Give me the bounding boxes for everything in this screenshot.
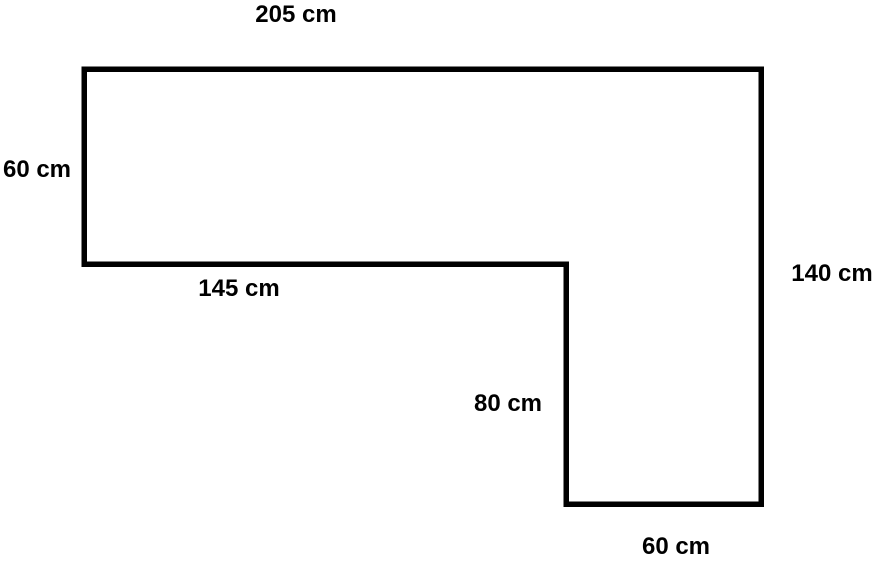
dimension-label-right: 140 cm (791, 262, 872, 286)
dimension-label-inner-vertical: 80 cm (474, 392, 542, 416)
l-shape-polygon (84, 69, 761, 504)
dimension-label-bottom: 60 cm (642, 535, 710, 559)
dimension-label-left: 60 cm (3, 158, 71, 182)
dimension-label-top: 205 cm (255, 3, 336, 27)
geometry-diagram: 205 cm 60 cm 145 cm 140 cm 80 cm 60 cm (0, 0, 882, 565)
dimension-label-inner-horizontal: 145 cm (198, 277, 279, 301)
l-shape-figure (0, 0, 882, 565)
